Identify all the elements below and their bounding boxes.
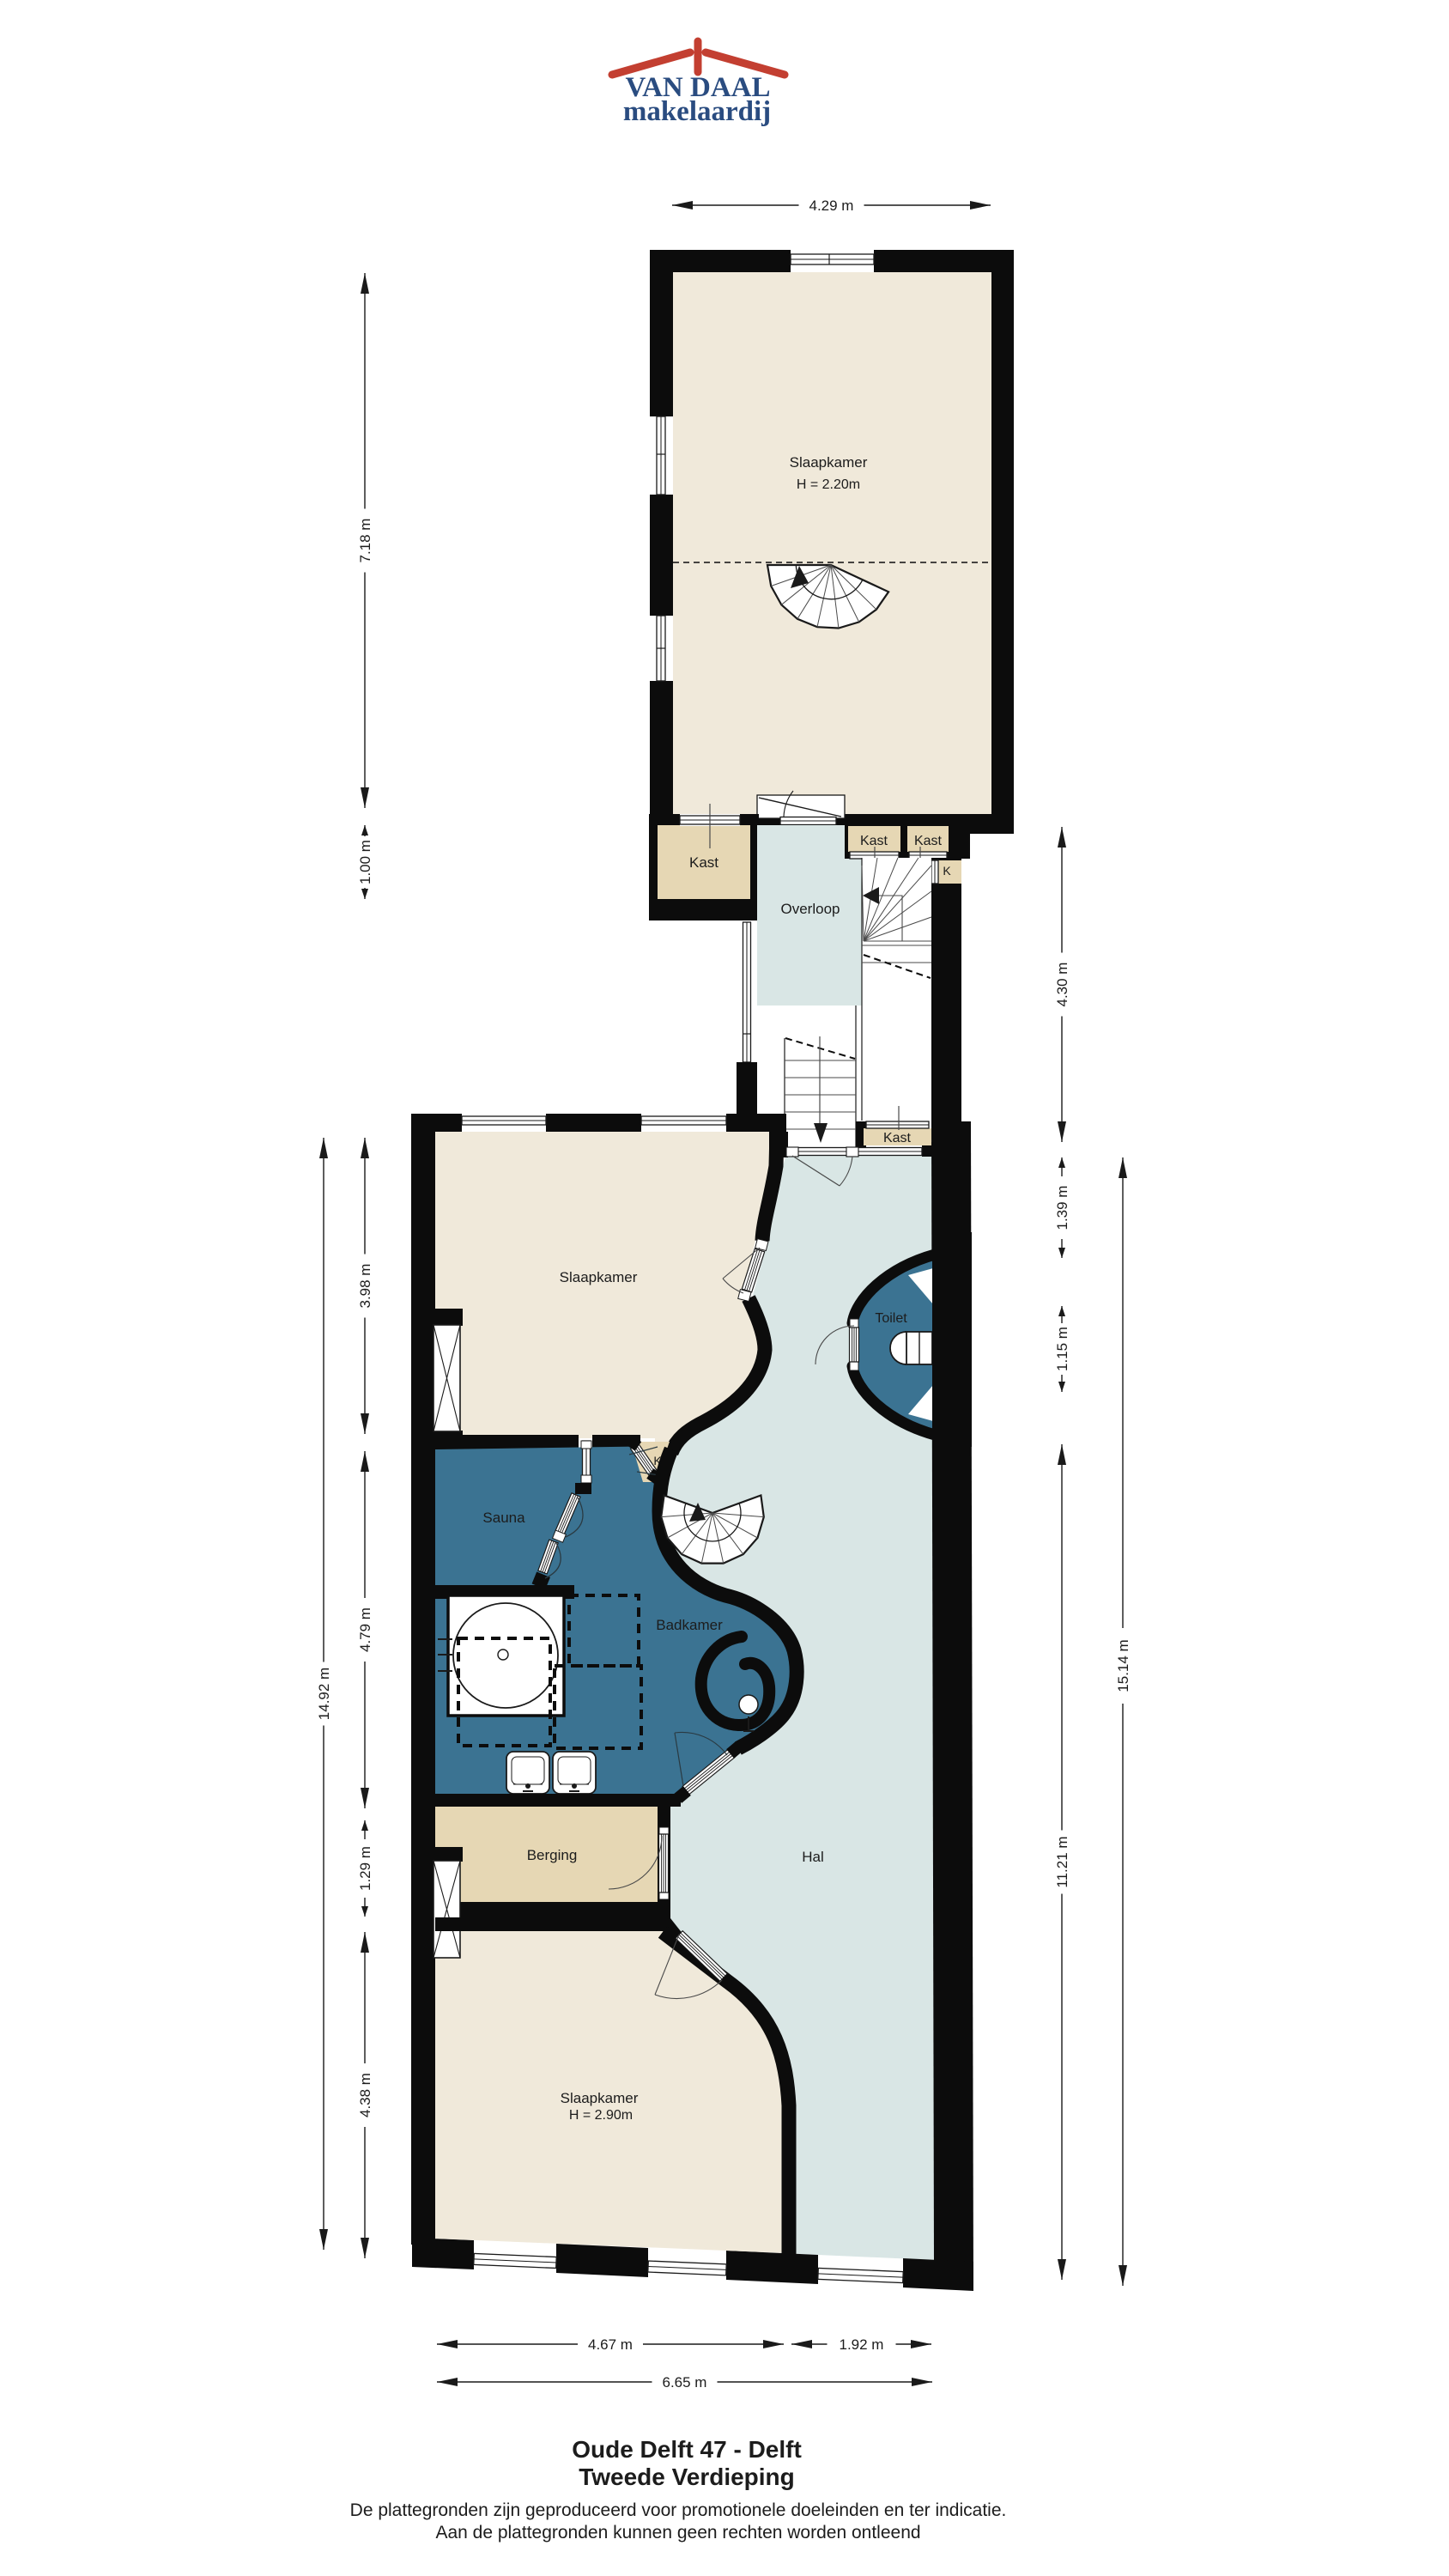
svg-text:Tweede Verdieping: Tweede Verdieping <box>579 2464 795 2490</box>
svg-text:Sauna: Sauna <box>482 1510 525 1526</box>
svg-text:Hal: Hal <box>802 1849 824 1865</box>
svg-text:Slaapkamer: Slaapkamer <box>561 2090 639 2106</box>
svg-text:H = 2.20m: H = 2.20m <box>797 477 860 492</box>
svg-text:Slaapkamer: Slaapkamer <box>790 454 868 471</box>
svg-text:Kast: Kast <box>689 854 718 871</box>
svg-text:4.67 m: 4.67 m <box>588 2336 633 2353</box>
svg-text:Toilet: Toilet <box>875 1311 907 1326</box>
svg-text:3.98 m: 3.98 m <box>357 1264 373 1309</box>
svg-text:14.92 m: 14.92 m <box>316 1668 332 1720</box>
svg-text:Slaapkamer: Slaapkamer <box>560 1269 638 1285</box>
svg-text:makelaardij: makelaardij <box>623 96 771 127</box>
svg-text:1.39 m: 1.39 m <box>1054 1186 1070 1230</box>
svg-text:1.00 m: 1.00 m <box>357 840 373 884</box>
svg-text:Aan de plattegronden kunnen ge: Aan de plattegronden kunnen geen rechten… <box>435 2523 920 2543</box>
svg-text:4.30 m: 4.30 m <box>1054 963 1070 1007</box>
svg-text:Badkamer: Badkamer <box>656 1617 723 1633</box>
svg-text:De plattegronden zijn geproduc: De plattegronden zijn geproduceerd voor … <box>350 2500 1007 2520</box>
svg-text:K: K <box>943 864 951 878</box>
svg-text:1.15 m: 1.15 m <box>1054 1327 1070 1371</box>
svg-text:4.38 m: 4.38 m <box>357 2073 373 2117</box>
svg-text:15.14 m: 15.14 m <box>1115 1639 1131 1692</box>
svg-text:Berging: Berging <box>527 1847 578 1863</box>
svg-text:1.92 m: 1.92 m <box>840 2336 884 2353</box>
svg-text:H = 2.90m: H = 2.90m <box>569 2108 633 2123</box>
svg-text:Kast: Kast <box>883 1131 912 1145</box>
svg-text:6.65 m: 6.65 m <box>663 2374 707 2391</box>
svg-text:Oude Delft 47 - Delft: Oude Delft 47 - Delft <box>572 2436 802 2463</box>
svg-text:Kast: Kast <box>860 834 888 848</box>
svg-text:Overloop: Overloop <box>781 901 840 917</box>
svg-text:4.79 m: 4.79 m <box>357 1607 373 1652</box>
svg-text:1.29 m: 1.29 m <box>357 1846 373 1891</box>
svg-text:4.29 m: 4.29 m <box>809 197 854 214</box>
svg-text:Kast: Kast <box>914 834 943 848</box>
svg-text:11.21 m: 11.21 m <box>1054 1836 1070 1887</box>
svg-text:7.18 m: 7.18 m <box>357 519 373 563</box>
